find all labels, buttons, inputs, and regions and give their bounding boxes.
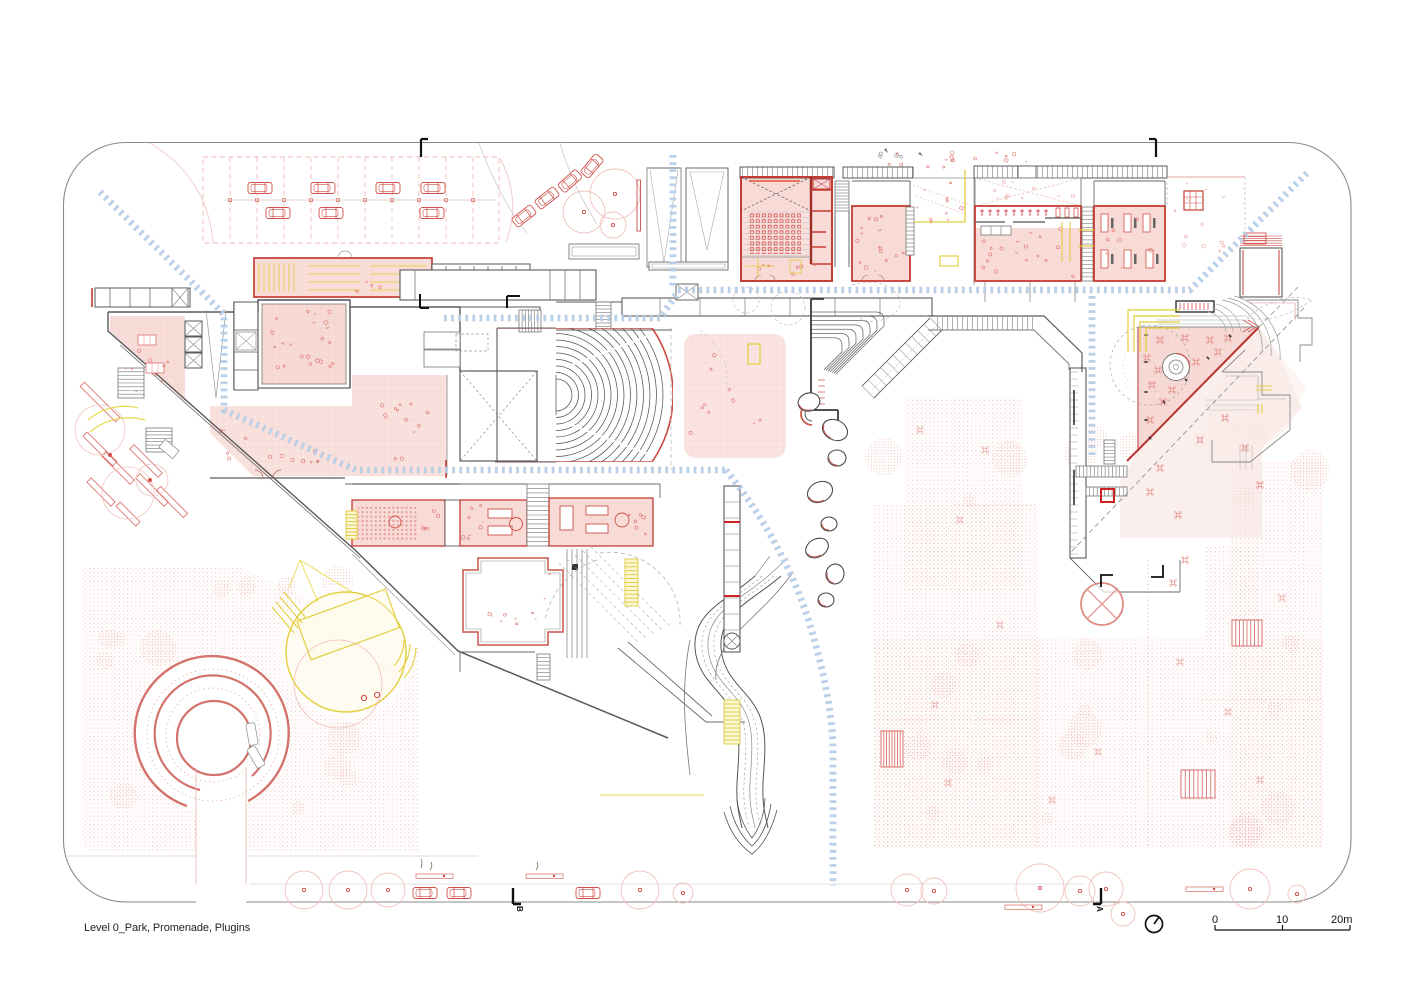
svg-text:0: 0 bbox=[1212, 914, 1218, 926]
svg-text:A: A bbox=[1095, 906, 1104, 912]
svg-text:10: 10 bbox=[1276, 914, 1288, 926]
svg-text:B: B bbox=[515, 906, 524, 912]
svg-text:Level 0_Park, Promenade, Plugi: Level 0_Park, Promenade, Plugins bbox=[84, 922, 251, 934]
svg-text:20m: 20m bbox=[1331, 914, 1352, 926]
